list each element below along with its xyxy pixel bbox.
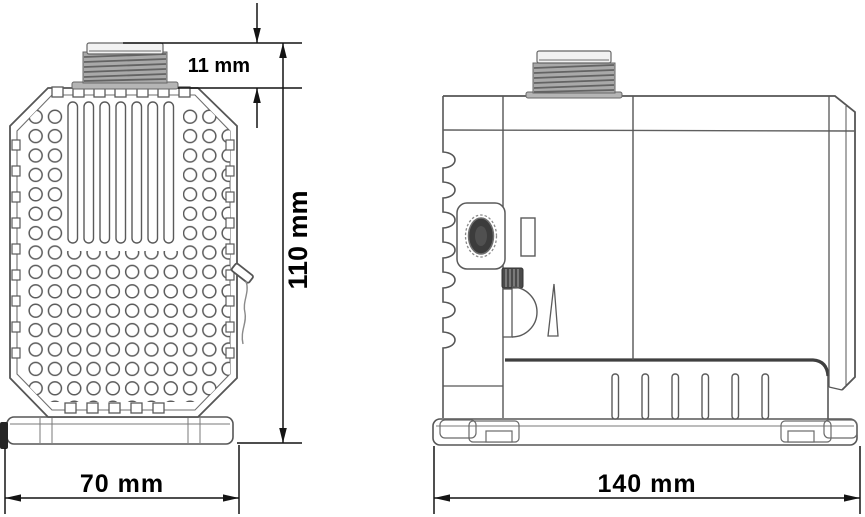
left-cooling-fins bbox=[443, 96, 455, 418]
technical-drawing-canvas: 11 mm 110 mm 70 mm 140 mm bbox=[0, 0, 865, 517]
threaded-outlet-front bbox=[72, 43, 178, 89]
front-base bbox=[0, 417, 233, 449]
side-view bbox=[433, 51, 857, 445]
outlet-height-label: 11 mm bbox=[188, 55, 250, 77]
overall-height-label: 110 mm bbox=[283, 190, 313, 289]
side-width-label: 140 mm bbox=[597, 470, 696, 498]
pump-dimension-drawing: 11 mm 110 mm 70 mm 140 mm bbox=[0, 0, 865, 517]
front-width-label: 70 mm bbox=[80, 470, 164, 498]
side-lower-housing bbox=[505, 360, 828, 419]
side-base bbox=[433, 419, 857, 445]
threaded-outlet-side bbox=[526, 51, 622, 98]
power-cord-stub bbox=[0, 422, 8, 449]
front-view bbox=[0, 43, 254, 449]
flow-adjuster-knob bbox=[502, 268, 523, 288]
dim-outlet-height bbox=[253, 3, 261, 128]
side-details bbox=[457, 203, 558, 337]
intake-grille-slots bbox=[68, 102, 174, 243]
slot-window bbox=[521, 218, 535, 256]
